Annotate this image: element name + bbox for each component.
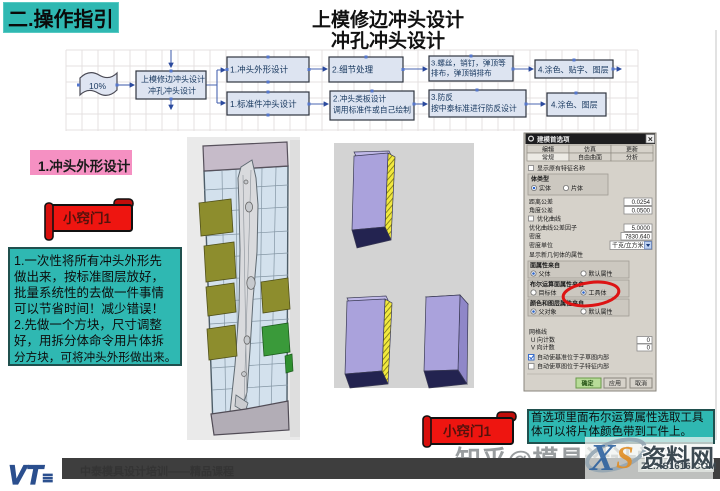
svg-text:4.涂色、贴字、图层: 4.涂色、贴字、图层 <box>538 65 609 75</box>
svg-text:排布，弹顶销排布: 排布，弹顶销排布 <box>431 68 492 78</box>
svg-text:按中泰标准进行防反设计: 按中泰标准进行防反设计 <box>431 103 517 113</box>
svg-text:父对象: 父对象 <box>539 308 557 316</box>
svg-text:S: S <box>616 439 634 475</box>
svg-text:仿真: 仿真 <box>584 145 596 153</box>
svg-text:实体: 实体 <box>539 185 551 193</box>
svg-text:10%: 10% <box>89 81 106 91</box>
svg-text:应用: 应用 <box>609 380 621 388</box>
svg-text:显示原有特征名称: 显示原有特征名称 <box>537 165 585 173</box>
svg-text:常规: 常规 <box>542 153 554 161</box>
svg-text:U 向计数: U 向计数 <box>531 336 555 344</box>
svg-text:5.0000: 5.0000 <box>632 226 651 232</box>
svg-text:自动使基准位于子草图内部: 自动使基准位于子草图内部 <box>537 354 609 362</box>
svg-text:面属性来自: 面属性来自 <box>530 262 560 270</box>
svg-text:上模修边冲头设计: 上模修边冲头设计 <box>141 74 205 84</box>
svg-text:目标体: 目标体 <box>539 289 557 297</box>
svg-text:调用标准件或自己绘制: 调用标准件或自己绘制 <box>333 105 411 115</box>
svg-text:冲孔冲头设计: 冲孔冲头设计 <box>148 86 196 96</box>
svg-text:小窍门1: 小窍门1 <box>63 210 111 226</box>
svg-text:默认属性: 默认属性 <box>589 308 613 316</box>
svg-text:密度: 密度 <box>529 233 541 241</box>
svg-text:距离公差: 距离公差 <box>529 198 553 206</box>
svg-text:工具体: 工具体 <box>589 289 607 297</box>
svg-text:自动使草图位于子特征内部: 自动使草图位于子特征内部 <box>537 363 609 371</box>
svg-text:片体: 片体 <box>571 185 583 193</box>
svg-text:0.0500: 0.0500 <box>632 209 651 215</box>
svg-text:网格线: 网格线 <box>529 328 547 336</box>
svg-text:2.冲头类板设计: 2.冲头类板设计 <box>333 94 386 104</box>
svg-text:自由曲面: 自由曲面 <box>578 153 602 161</box>
svg-text:取消: 取消 <box>635 380 647 388</box>
svg-text:1.冲头外形设计: 1.冲头外形设计 <box>230 65 289 75</box>
svg-text:2.细节处理: 2.细节处理 <box>332 65 374 75</box>
svg-text:优化曲线: 优化曲线 <box>537 215 561 223</box>
svg-text:体类型: 体类型 <box>531 175 549 183</box>
svg-text:V 向计数: V 向计数 <box>531 344 555 352</box>
svg-text:1.标准件冲头设计: 1.标准件冲头设计 <box>230 99 297 109</box>
svg-text:3.螺丝，销钉，弹顶等: 3.螺丝，销钉，弹顶等 <box>431 58 506 68</box>
svg-text:编辑: 编辑 <box>542 145 554 153</box>
svg-text:千克/立方米: 千克/立方米 <box>612 242 644 250</box>
svg-text:角度公差: 角度公差 <box>529 207 553 215</box>
svg-text:X: X <box>589 437 617 479</box>
svg-text:小窍门1: 小窍门1 <box>443 423 491 439</box>
svg-text:✕: ✕ <box>648 136 654 143</box>
svg-text:确定: 确定 <box>582 380 594 388</box>
svg-text:优化曲线公差因子: 优化曲线公差因子 <box>529 224 577 232</box>
svg-text:分析: 分析 <box>626 153 638 161</box>
svg-text:建模首选项: 建模首选项 <box>536 135 570 144</box>
svg-text:密度单位: 密度单位 <box>529 242 553 250</box>
svg-text:更新: 更新 <box>626 145 638 153</box>
svg-text:父体: 父体 <box>539 270 551 278</box>
svg-text:0.0254: 0.0254 <box>632 200 651 206</box>
svg-text:显示新几何体的属性: 显示新几何体的属性 <box>529 251 583 259</box>
svg-text:7830.640: 7830.640 <box>625 235 651 241</box>
svg-text:默认属性: 默认属性 <box>589 270 613 278</box>
svg-text:3.防反: 3.防反 <box>431 92 453 102</box>
svg-text:4.涂色、图层: 4.涂色、图层 <box>551 100 598 110</box>
